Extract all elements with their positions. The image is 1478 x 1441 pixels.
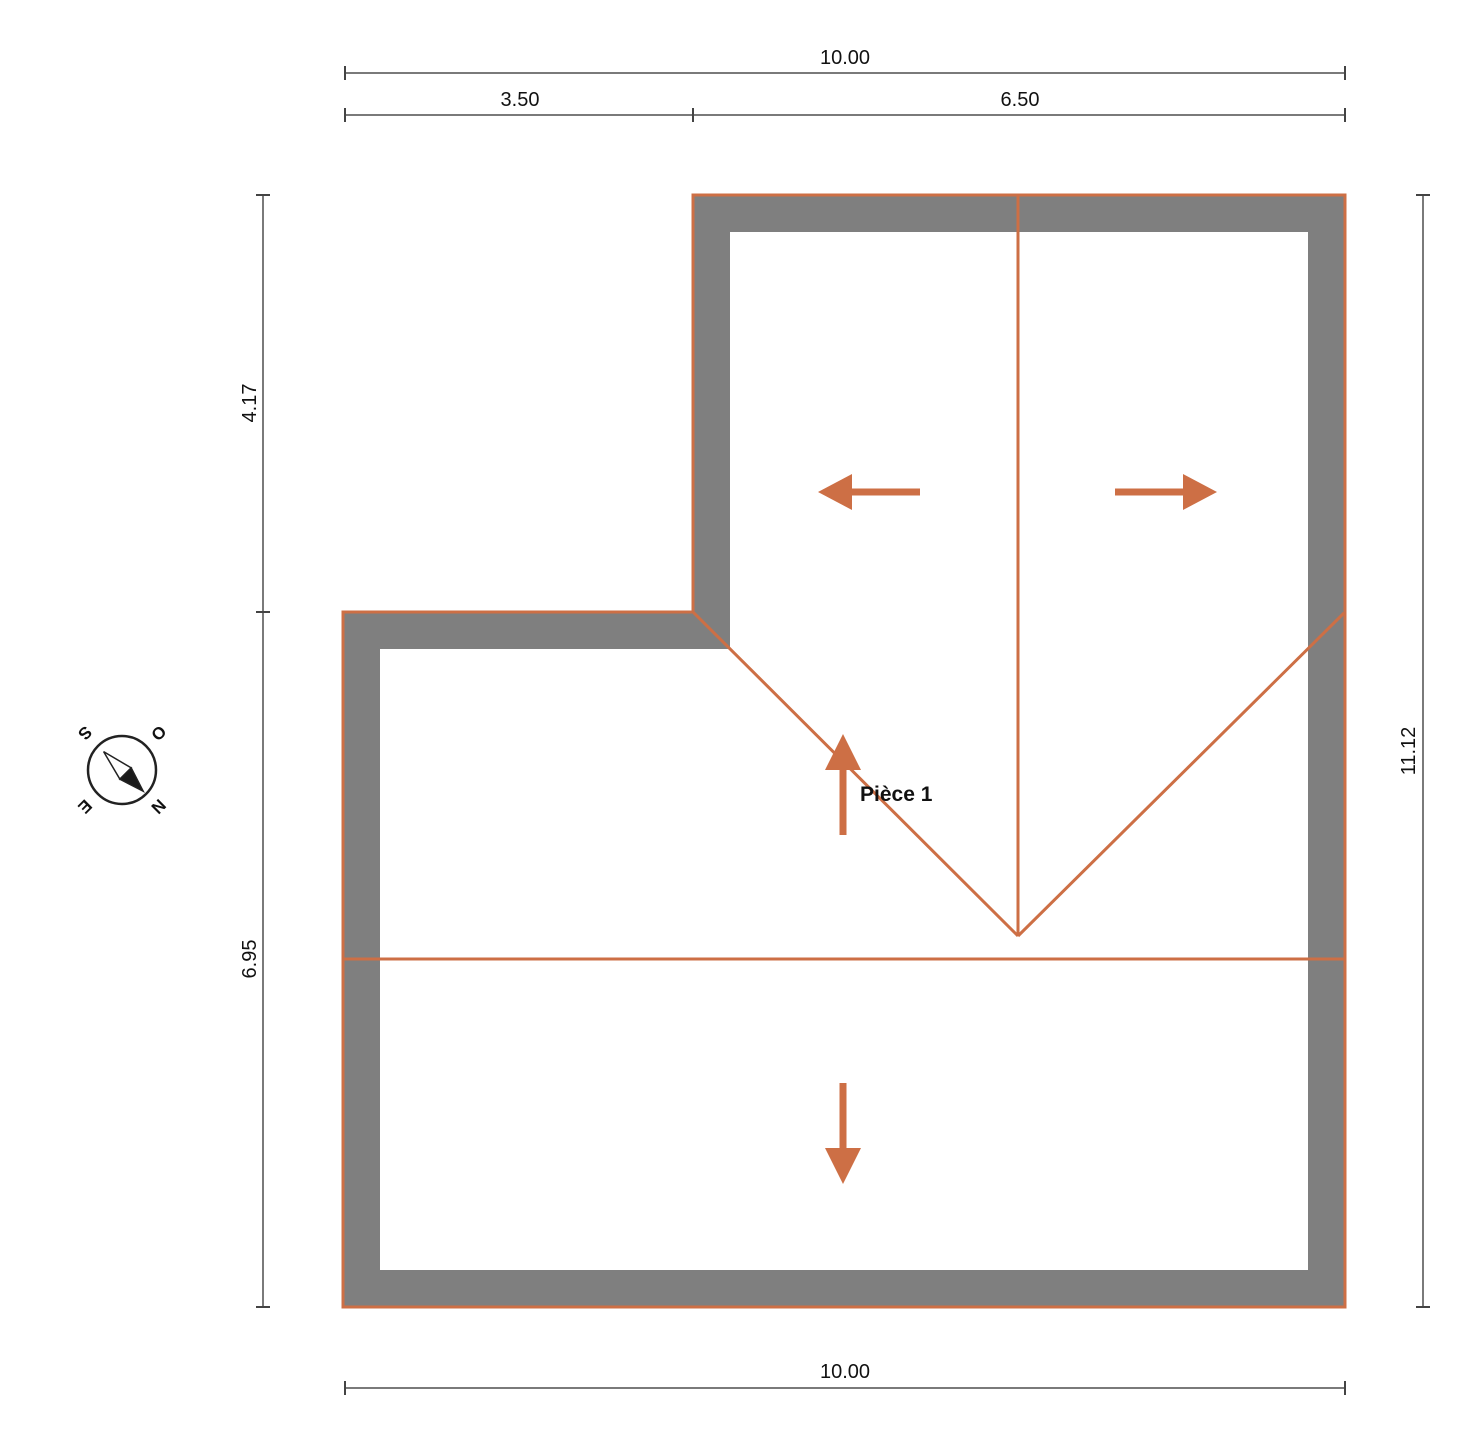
compass-label-south: S — [74, 722, 95, 743]
roof-slope-arrow-right — [1115, 474, 1217, 510]
dimension-left: 4.17 6.95 — [239, 195, 270, 1307]
compass-needle-icon — [98, 746, 149, 797]
compass-label-west: O — [147, 721, 170, 744]
roof-valley-line-left — [693, 612, 1018, 936]
dimension-top-segments: 3.50 6.50 — [345, 89, 1345, 122]
roof-slope-arrow-down — [825, 1083, 861, 1184]
dimension-right: 11.12 — [1398, 195, 1430, 1307]
room-label: Pièce 1 — [860, 783, 933, 806]
dimension-label-right-total: 11.12 — [1398, 727, 1420, 776]
dimension-label-left-lower: 6.95 — [239, 940, 261, 979]
dimension-label-top-total: 10.00 — [820, 47, 870, 69]
dimension-label-top-right: 6.50 — [1001, 89, 1040, 111]
dimension-label-bottom-total: 10.00 — [820, 1361, 870, 1383]
compass: N E S O — [37, 685, 206, 854]
floor-plan-drawing: Pièce 1 10.00 3.50 6.50 4.17 6.95 11.12 — [0, 0, 1478, 1441]
compass-label-east: E — [74, 796, 95, 817]
dimension-top-total: 10.00 — [345, 47, 1345, 80]
dimension-bottom: 10.00 — [345, 1361, 1345, 1395]
roof-slope-arrow-left — [818, 474, 920, 510]
compass-label-north: N — [147, 795, 169, 817]
floor-plan-canvas: Pièce 1 10.00 3.50 6.50 4.17 6.95 11.12 — [0, 0, 1478, 1441]
dimension-label-top-left: 3.50 — [501, 89, 540, 111]
dimension-label-left-upper: 4.17 — [239, 384, 261, 423]
roof-valley-line-right — [1018, 613, 1344, 936]
